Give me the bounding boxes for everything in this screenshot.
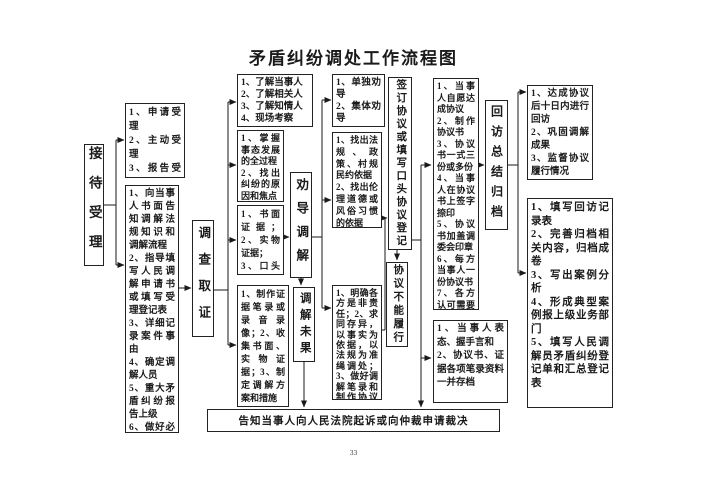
persuasion-methods-box: 1、单独劝导 2、集体劝导 — [332, 74, 385, 127]
archive-tasks-box: 1、填写回访记录表 2、完善归档相关内容，归档成卷 3、写出案例分析 4、形成典… — [527, 198, 613, 408]
stage-agreement-label: 签订协议或填写口头协议登记 — [395, 79, 406, 248]
persuasion-basis-box: 1、找出法规、政策、村规民约依据 2、找出伦理道德或风俗习惯的依据 — [332, 132, 382, 228]
stage-reception-label: 接待受理 — [87, 146, 101, 264]
stage-mediation-failed-box: 调解未果 — [293, 287, 315, 362]
investigation-goals-box: 1、掌握事态发展的全过程 2、找出纠纷的原因和焦点 — [237, 130, 284, 202]
page-number: 33 — [0, 448, 707, 457]
stage-review-label: 回访总结归档 — [491, 105, 503, 225]
stage-persuasion-label: 劝导调解 — [295, 178, 308, 272]
reception-methods-box: 1、申请受理 2、主动受理 3、报告受理 4、委托受理 5、指定受理 — [125, 103, 185, 178]
evidence-tasks-box: 1、制作证据笔录或录音录像；2、收集书面、实物证据；3、制定调解方案和措施 — [237, 285, 289, 407]
stage-persuasion-box: 劝导调解 — [290, 172, 312, 278]
stage-review-box: 回访总结归档 — [485, 100, 508, 230]
stage-investigation-box: 调查取证 — [192, 220, 214, 337]
stage-reception-box: 接待受理 — [84, 144, 104, 266]
review-visit-box: 1、达成协议后十日内进行回访 2、巩固调解成果 3、监督协议履行情况 — [527, 85, 593, 180]
lawsuit-notice-bar: 告知当事人向人民法院起诉或向仲裁申请裁决 — [207, 409, 500, 432]
page-title: 矛盾纠纷调处工作流程图 — [0, 44, 707, 69]
stage-agreement-unenforceable-label: 协议不能履行 — [392, 264, 403, 345]
mediation-principles-box: 1、明确各方是非责任；2、求同存异，以事实为依据，以法规为准绳调处；3、做好调解… — [332, 285, 382, 400]
agreement-tasks-box: 1、当事人自愿达成协议 2、制作协议书 3、协议书一式三份或多份 4、当事人在协… — [433, 78, 479, 310]
investigation-targets-box: 1、了解当事人 2、了解相关人 3、了解知情人 4、现场考察 — [237, 74, 313, 127]
reception-tasks-box: 1、向当事人书面告知调解法规知识和调解流程 2、指导填写人民调解申请书或填写受理… — [125, 185, 179, 433]
oral-agreement-tasks-box: 1、当事人表态、握手言和 2、协议书、证据各项笔录资料一并存档 — [433, 320, 508, 403]
stage-investigation-label: 调查取证 — [197, 226, 210, 332]
stage-mediation-failed-label: 调解未果 — [298, 292, 310, 358]
evidence-types-box: 1、书面证据；2、实物证据； 3、口头及其他证据 — [237, 205, 284, 275]
stage-agreement-box: 签订协议或填写口头协议登记 — [388, 77, 412, 250]
stage-agreement-unenforceable-box: 协议不能履行 — [386, 262, 408, 347]
